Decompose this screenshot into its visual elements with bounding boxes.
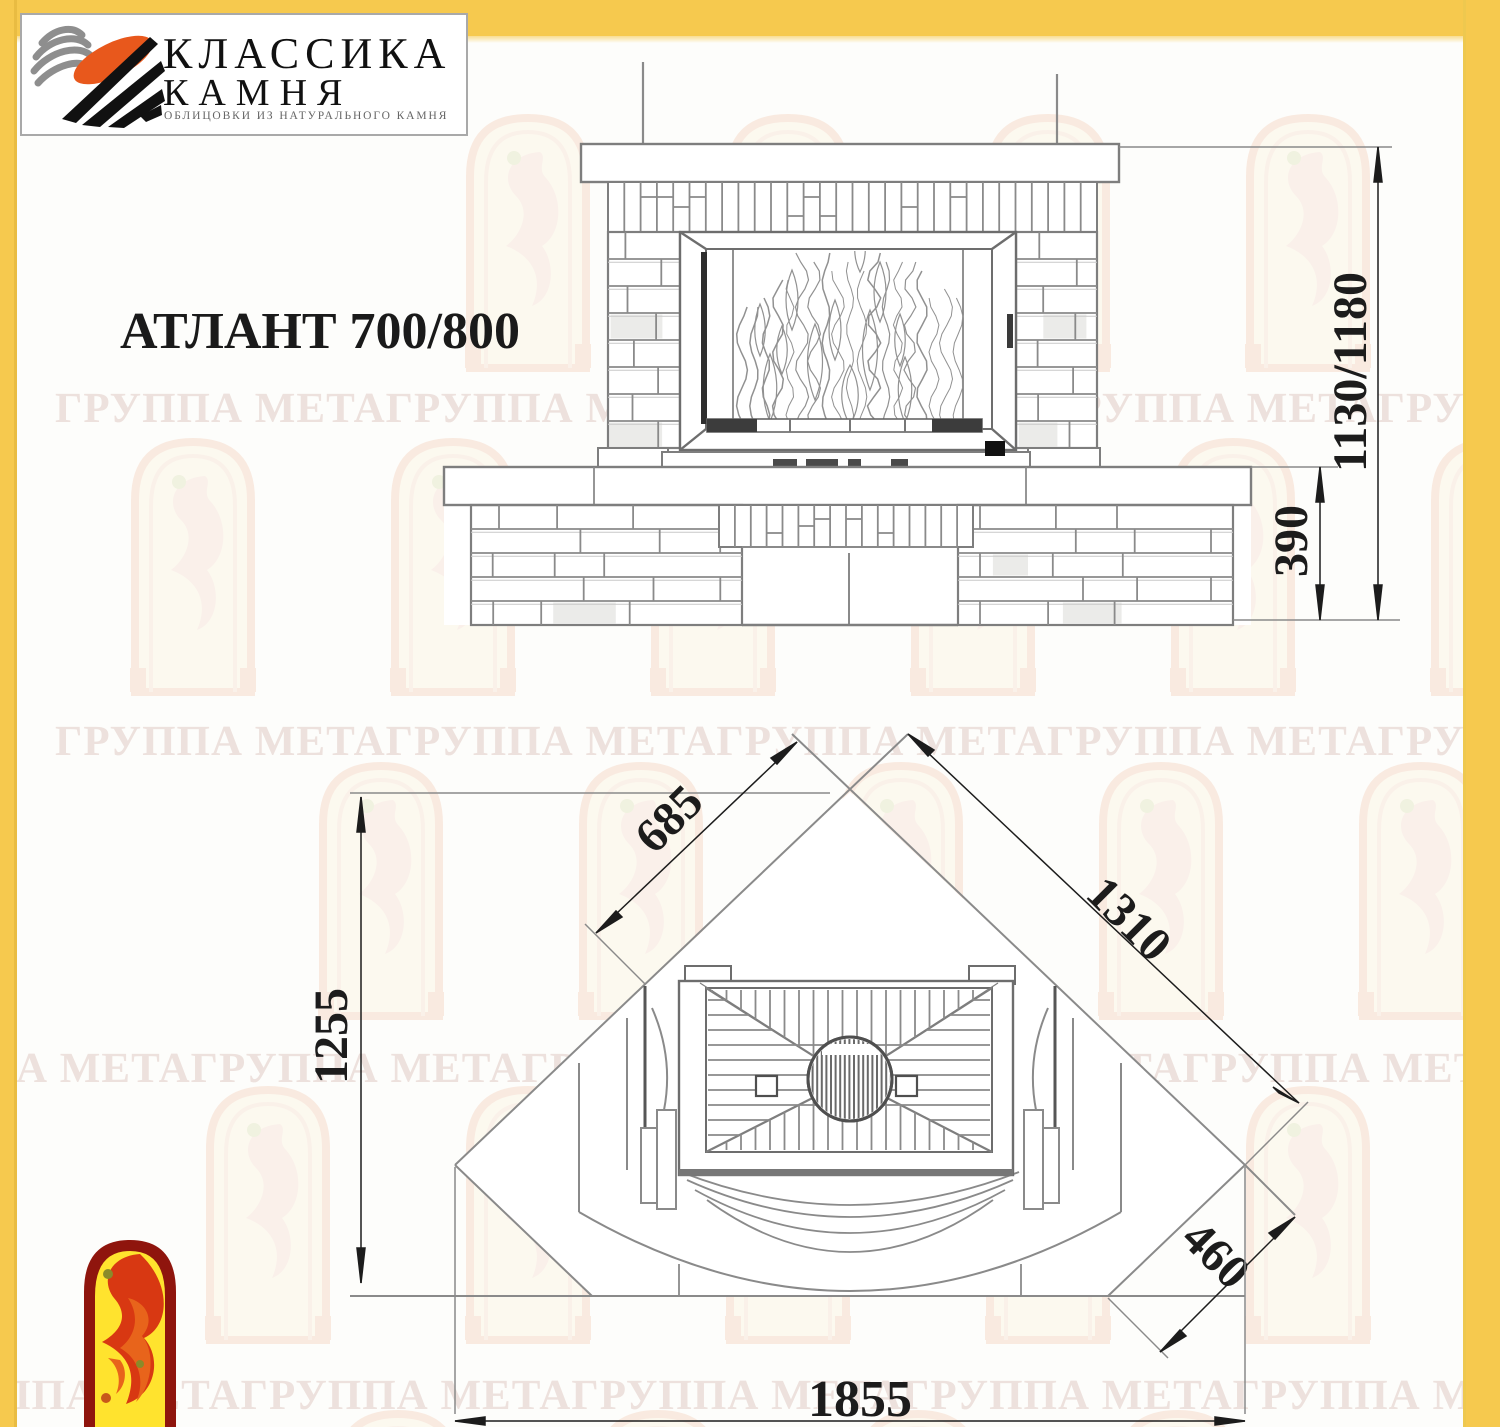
svg-text:390: 390 bbox=[1265, 505, 1318, 577]
svg-text:ГРУППА МЕТАГРУППА МЕТАГРУППА М: ГРУППА МЕТАГРУППА МЕТАГРУППА МЕТАГРУППА … bbox=[0, 1372, 1500, 1419]
svg-text:1130/1180: 1130/1180 bbox=[1324, 272, 1377, 472]
svg-text:1855: 1855 bbox=[808, 1371, 912, 1427]
svg-text:1255: 1255 bbox=[305, 988, 358, 1084]
